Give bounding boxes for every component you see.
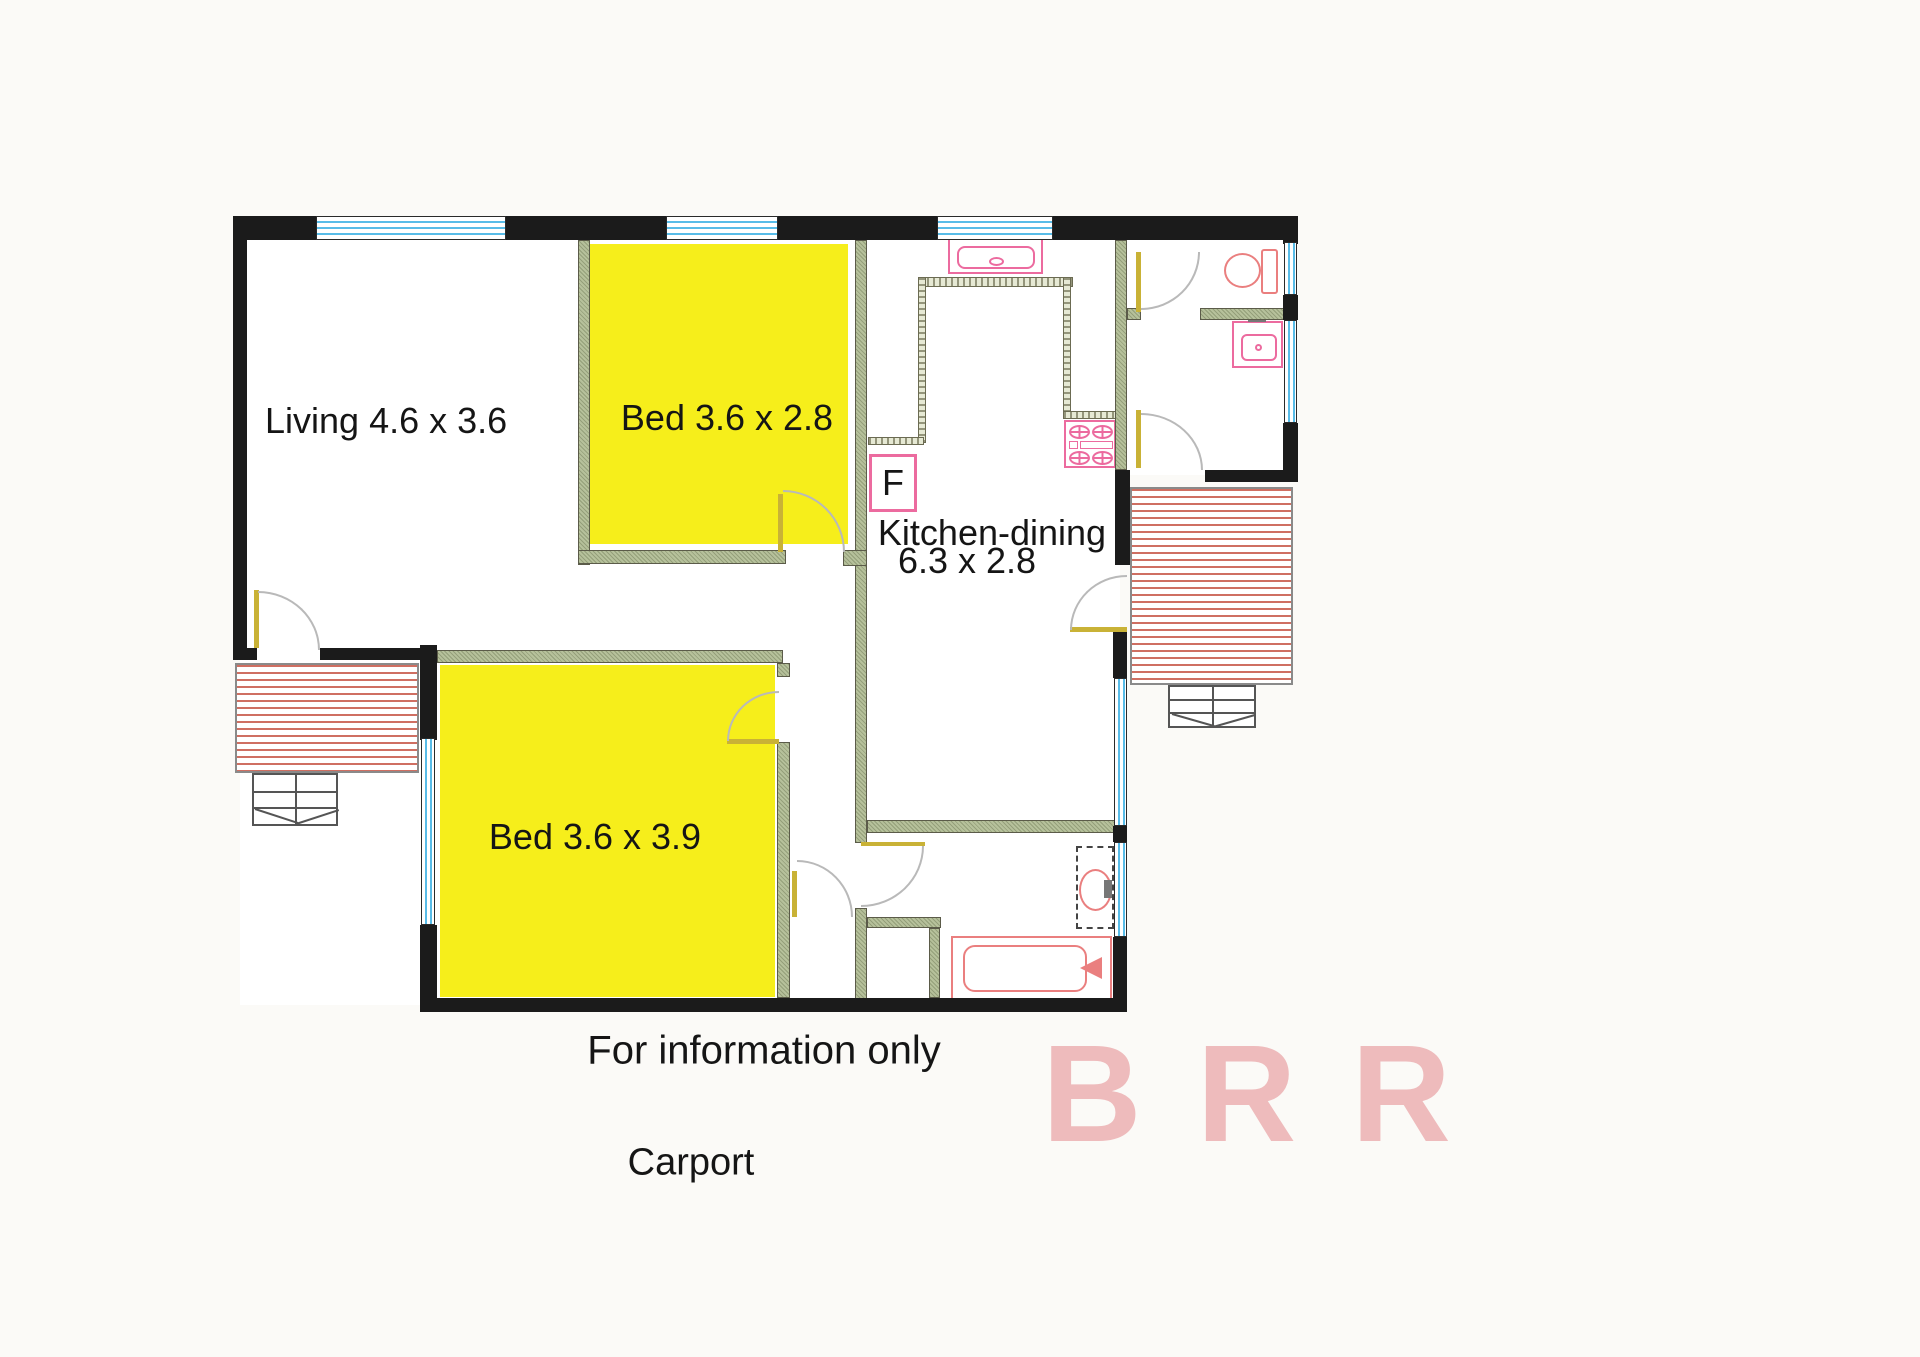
kitchen-bench-left-end bbox=[868, 437, 924, 445]
wall-south bbox=[427, 998, 1127, 1012]
wall-left bbox=[233, 216, 247, 658]
stove-burner bbox=[1092, 451, 1113, 465]
stove-burner bbox=[1069, 451, 1090, 465]
step-line bbox=[295, 775, 297, 824]
deck-right bbox=[1130, 487, 1293, 685]
stove-panel bbox=[1069, 441, 1078, 449]
steps-left bbox=[252, 773, 338, 826]
step-arrow bbox=[255, 808, 298, 824]
kitchen-sink bbox=[948, 236, 1043, 274]
window bbox=[937, 216, 1053, 240]
kitchen-room-dimensions: 6.3 x 2.8 bbox=[898, 540, 1036, 582]
deck-left bbox=[235, 663, 419, 773]
info-note: For information only bbox=[587, 1029, 940, 1074]
step-line bbox=[1212, 687, 1214, 726]
wall-bed1-bottom bbox=[578, 550, 786, 564]
wall-wc-half bbox=[1200, 308, 1284, 320]
wall-east-wc bbox=[1283, 295, 1298, 320]
wall-bed2-right-stub bbox=[777, 663, 790, 677]
carport-label: Carport bbox=[628, 1142, 755, 1185]
wall-east-main bbox=[1113, 632, 1127, 678]
wall-top bbox=[506, 216, 666, 240]
wall-bed1-right bbox=[855, 240, 867, 843]
wall-living-bottom bbox=[233, 648, 257, 660]
step-arrow bbox=[296, 809, 339, 825]
step-arrow bbox=[1172, 713, 1215, 727]
wall-hall-lower bbox=[855, 908, 867, 1000]
window bbox=[666, 216, 778, 240]
window bbox=[1284, 320, 1297, 423]
wall-east-wc bbox=[1283, 216, 1298, 244]
window bbox=[316, 216, 506, 240]
wall-bed2-top bbox=[437, 650, 783, 663]
toilet-cistern bbox=[1261, 249, 1278, 294]
living-room-label: Living 4.6 x 3.6 bbox=[265, 400, 507, 442]
bathtub-inner bbox=[963, 945, 1087, 992]
wall-east-main bbox=[1113, 826, 1127, 842]
steps-right bbox=[1168, 685, 1256, 728]
wall-bed2-right bbox=[777, 742, 790, 998]
fridge-box: F bbox=[869, 454, 917, 512]
wall-bathroom-top bbox=[867, 820, 1117, 833]
bathtub bbox=[951, 936, 1112, 1001]
floor-plan: F bbox=[0, 0, 1920, 1357]
fridge-label: F bbox=[882, 462, 904, 504]
wall-top bbox=[1053, 216, 1298, 240]
wall-bed1-bottom-end bbox=[843, 550, 867, 566]
wall-bed2-left bbox=[420, 645, 437, 740]
wall-bed2-left bbox=[420, 925, 437, 1012]
wall-bed1-left bbox=[578, 240, 590, 565]
wc-basin bbox=[1232, 321, 1283, 368]
kitchen-sink-drain bbox=[989, 257, 1004, 266]
wall-top bbox=[778, 216, 937, 240]
wall-corner-mid bbox=[1115, 470, 1130, 565]
stove-burner bbox=[1069, 425, 1090, 439]
window bbox=[1114, 678, 1127, 826]
wall-linen-top bbox=[867, 917, 941, 928]
watermark: BRR bbox=[1042, 1015, 1506, 1174]
stove-burner bbox=[1092, 425, 1113, 439]
bed1-room-label: Bed 3.6 x 2.8 bbox=[621, 397, 833, 439]
bathtub-spout bbox=[1080, 957, 1102, 979]
stove bbox=[1064, 420, 1116, 468]
toilet-bowl bbox=[1224, 253, 1261, 288]
window bbox=[1284, 242, 1297, 295]
window bbox=[1114, 842, 1127, 937]
window bbox=[421, 738, 435, 925]
wall-wc-bottom bbox=[1205, 470, 1298, 482]
kitchen-bench-right-end bbox=[1063, 411, 1117, 419]
wall-wc-left bbox=[1115, 240, 1127, 470]
step-arrow bbox=[1213, 714, 1256, 728]
kitchen-bench-right bbox=[1063, 277, 1071, 417]
wall-linen-right bbox=[929, 928, 940, 998]
stove-panel bbox=[1080, 441, 1113, 449]
kitchen-bench-left bbox=[918, 277, 926, 443]
vanity-tap bbox=[1104, 880, 1112, 898]
kitchen-bench-front bbox=[920, 277, 1073, 287]
bed2-room-label: Bed 3.6 x 3.9 bbox=[489, 816, 701, 858]
wc-basin-drain bbox=[1255, 344, 1262, 351]
